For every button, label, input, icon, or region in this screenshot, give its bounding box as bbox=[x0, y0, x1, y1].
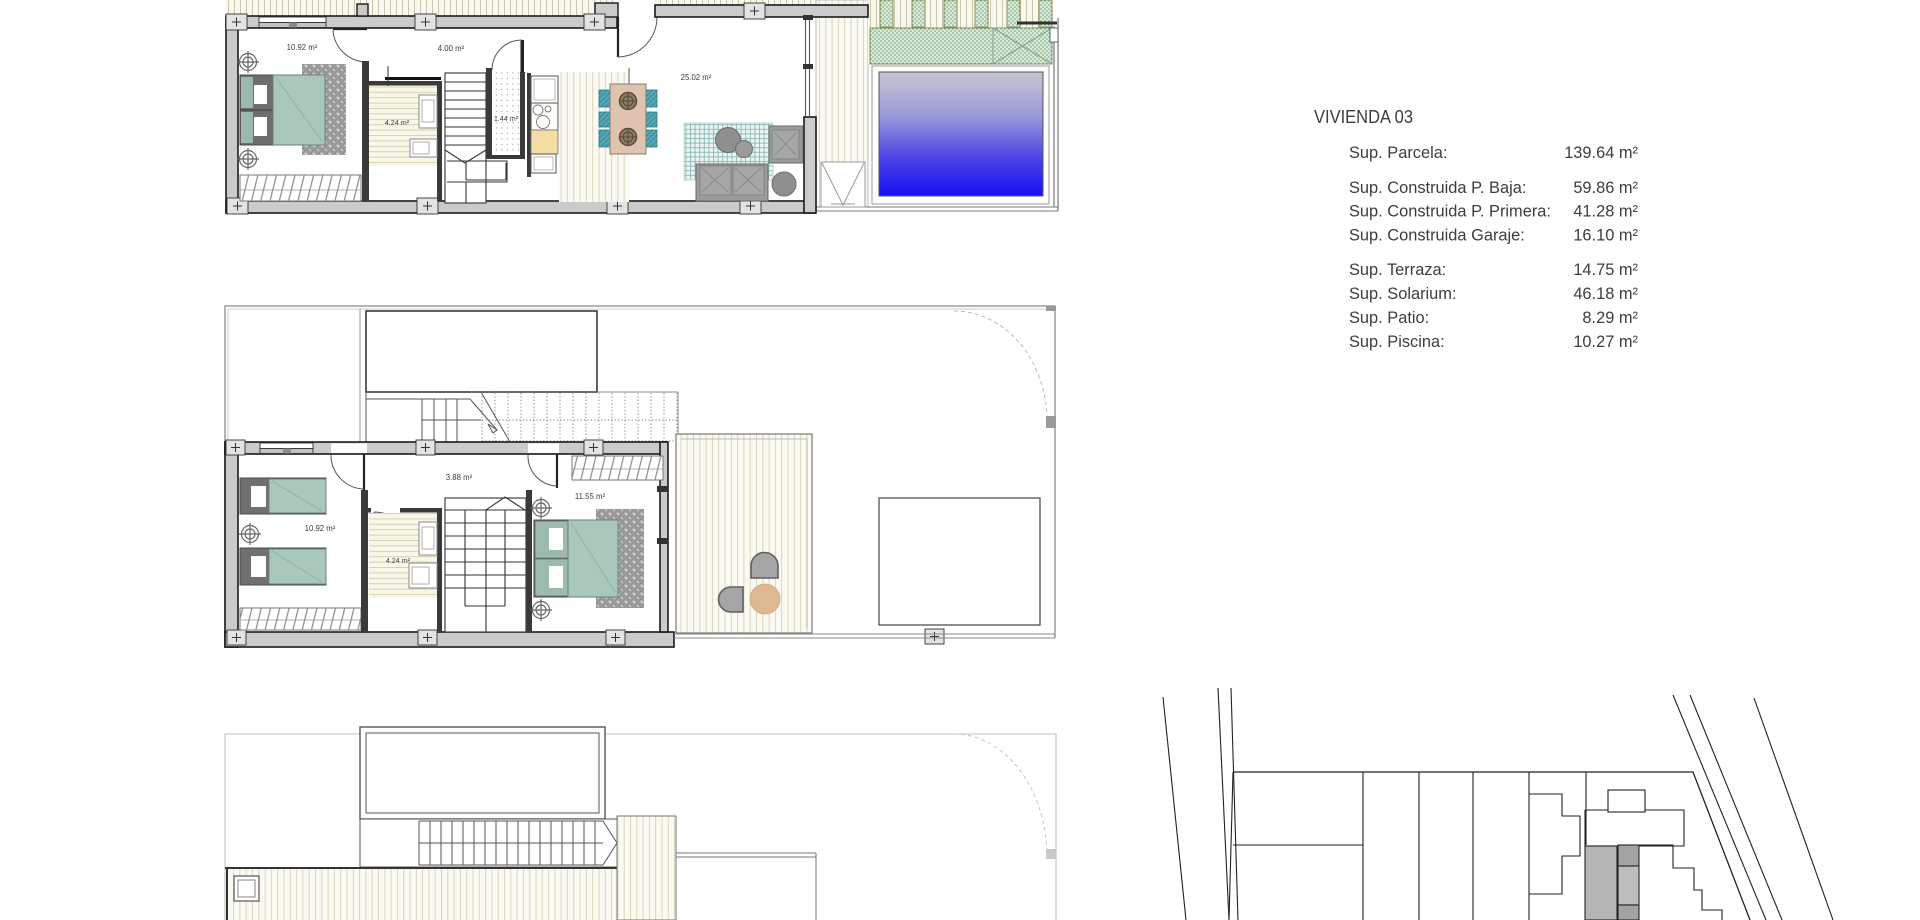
svg-text:Sup. Piscina:: Sup. Piscina: bbox=[1349, 333, 1445, 351]
svg-text:Sup. Terraza:: Sup. Terraza: bbox=[1349, 261, 1446, 279]
svg-text:VIVIENDA 03: VIVIENDA 03 bbox=[1314, 107, 1413, 127]
svg-text:10.27 m²: 10.27 m² bbox=[1573, 333, 1638, 351]
svg-text:4.24 m²: 4.24 m² bbox=[385, 118, 410, 127]
svg-text:Sup. Parcela:: Sup. Parcela: bbox=[1349, 144, 1447, 162]
svg-text:Sup. Construida P. Primera:: Sup. Construida P. Primera: bbox=[1349, 203, 1551, 221]
svg-text:1.44 m²: 1.44 m² bbox=[494, 114, 519, 123]
svg-text:41.28 m²: 41.28 m² bbox=[1573, 203, 1638, 221]
svg-text:Sup. Construida P. Baja:: Sup. Construida P. Baja: bbox=[1349, 179, 1526, 197]
svg-text:46.18 m²: 46.18 m² bbox=[1573, 285, 1638, 303]
svg-text:4.24 m²: 4.24 m² bbox=[386, 556, 411, 565]
svg-text:25.02 m²: 25.02 m² bbox=[681, 73, 712, 82]
svg-text:14.75 m²: 14.75 m² bbox=[1573, 261, 1638, 279]
svg-text:Sup. Construida Garaje:: Sup. Construida Garaje: bbox=[1349, 227, 1525, 245]
svg-text:Sup. Solarium:: Sup. Solarium: bbox=[1349, 285, 1457, 303]
svg-text:10.92 m²: 10.92 m² bbox=[305, 524, 336, 533]
svg-text:3.88 m²: 3.88 m² bbox=[446, 473, 473, 482]
svg-text:10.92 m²: 10.92 m² bbox=[287, 43, 318, 52]
svg-text:11.55 m²: 11.55 m² bbox=[575, 492, 606, 501]
svg-text:59.86 m²: 59.86 m² bbox=[1573, 179, 1638, 197]
svg-text:139.64 m²: 139.64 m² bbox=[1564, 144, 1638, 162]
svg-text:8.29 m²: 8.29 m² bbox=[1582, 309, 1638, 327]
svg-text:4.00 m²: 4.00 m² bbox=[438, 44, 465, 53]
svg-text:Sup. Patio:: Sup. Patio: bbox=[1349, 309, 1429, 327]
svg-text:16.10 m²: 16.10 m² bbox=[1573, 227, 1638, 245]
